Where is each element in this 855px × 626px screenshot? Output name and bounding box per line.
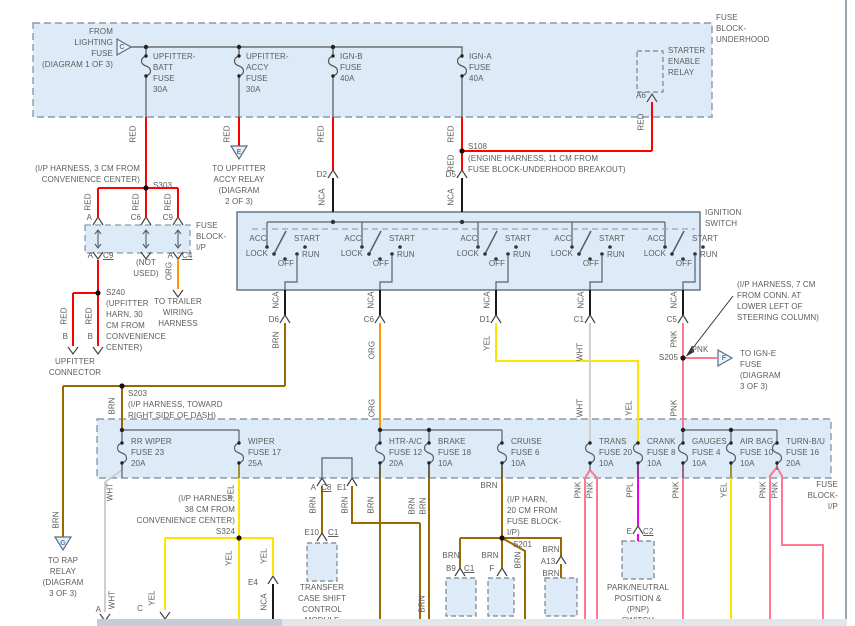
splice-s303 <box>143 185 148 190</box>
off-page-triangles <box>55 146 732 550</box>
b9-c1-connector-box <box>446 578 476 616</box>
s205-pointer-line <box>686 296 733 358</box>
a13-connector-box <box>545 578 577 616</box>
splice-s324 <box>236 535 241 540</box>
splice-s201 <box>499 535 504 540</box>
horizontal-scrollbar-thumb[interactable] <box>97 619 282 626</box>
fuse-block-ip-small-box <box>85 225 190 253</box>
splice-s205 <box>680 355 685 360</box>
splice-s240 <box>95 290 100 295</box>
fuse-block-underhood-box <box>33 23 712 117</box>
f-connector-box <box>488 578 514 616</box>
transfer-case-module-box <box>307 543 337 581</box>
right-page-border <box>845 0 847 619</box>
fuse-block-ip-box <box>97 419 831 478</box>
pnp-switch-box <box>622 541 654 579</box>
splice-s203 <box>119 383 124 388</box>
ignition-switch-box <box>237 212 700 290</box>
wiring-diagram-page: FROMLIGHTINGFUSE(DIAGRAM 1 OF 3)CUPFITTE… <box>0 0 855 626</box>
horizontal-scrollbar[interactable] <box>97 619 847 626</box>
to-upfitter-accy-relay-triangle <box>231 146 247 159</box>
wiring-diagram-canvas <box>0 0 855 626</box>
splice-s108 <box>459 148 464 153</box>
to-ign-e-fuse-triangle <box>718 350 732 366</box>
to-rap-relay-triangle <box>55 537 71 550</box>
